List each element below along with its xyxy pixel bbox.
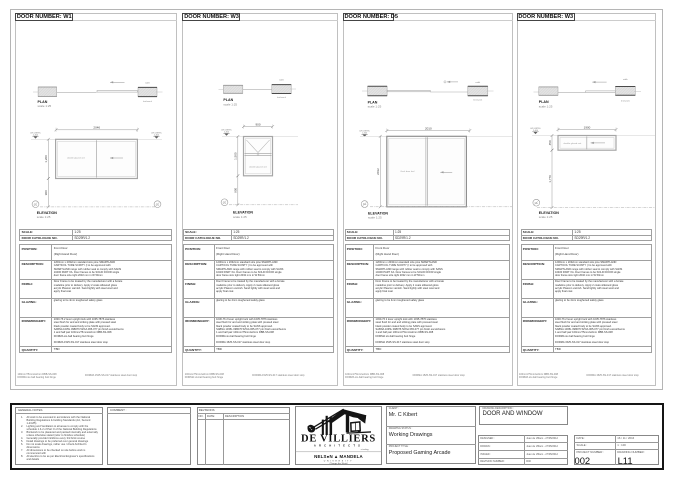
svg-text:width: width	[145, 82, 151, 85]
svg-text:GL: GL	[363, 202, 367, 206]
svg-text:2032: 2032	[376, 168, 380, 175]
svg-text:1900: 1900	[584, 125, 591, 129]
svg-text:brickwork: brickwork	[143, 100, 153, 103]
svg-text:GL: GL	[34, 202, 38, 206]
svg-text:ARCHITECTS: ARCHITECTS	[313, 443, 362, 447]
svg-text:scale 1:25: scale 1:25	[539, 104, 553, 108]
svg-text:scale 1:25: scale 1:25	[38, 104, 52, 108]
svg-text:scale 1:25: scale 1:25	[37, 215, 51, 219]
svg-text:2046: 2046	[93, 126, 100, 130]
svg-text:scale 1:25: scale 1:25	[233, 215, 247, 219]
svg-text:NELS●N ▲ MANDELA: NELS●N ▲ MANDELA	[314, 454, 363, 459]
svg-text:scale 1:25: scale 1:25	[368, 216, 382, 220]
svg-text:2010: 2010	[425, 126, 432, 130]
svg-text:width: width	[279, 78, 285, 81]
svg-text:DE VILLIERS: DE VILLIERS	[301, 434, 376, 445]
svg-text:double glazed unit: double glazed unit	[564, 142, 582, 145]
svg-text:1,200: 1,200	[44, 155, 48, 163]
svg-text:brickwork: brickwork	[473, 99, 483, 102]
svg-text:Change the World: Change the World	[329, 462, 347, 465]
svg-text:450: 450	[548, 140, 552, 145]
svg-text:double glazed unit: double glazed unit	[249, 166, 267, 169]
svg-text:a trading: a trading	[360, 448, 369, 451]
svg-text:1,500: 1,500	[234, 152, 238, 160]
svg-text:GL: GL	[156, 202, 160, 206]
svg-text:brickwork: brickwork	[621, 100, 631, 103]
svg-text:GL: GL	[223, 200, 227, 204]
svg-text:flush door leaf: flush door leaf	[401, 170, 415, 173]
svg-text:900: 900	[44, 190, 48, 195]
svg-text:brickwork: brickwork	[277, 96, 287, 99]
svg-text:scale 1:25: scale 1:25	[539, 215, 553, 219]
svg-text:GL: GL	[535, 201, 539, 205]
svg-text:900: 900	[255, 122, 260, 126]
svg-text:width: width	[623, 78, 629, 81]
svg-text:scale 1:25: scale 1:25	[223, 102, 237, 106]
svg-text:1,770: 1,770	[548, 175, 552, 183]
svg-text:double glazed unit: double glazed unit	[67, 156, 85, 159]
svg-text:scale 1:25: scale 1:25	[368, 105, 382, 109]
svg-text:width: width	[475, 81, 481, 84]
svg-text:900: 900	[234, 187, 238, 192]
